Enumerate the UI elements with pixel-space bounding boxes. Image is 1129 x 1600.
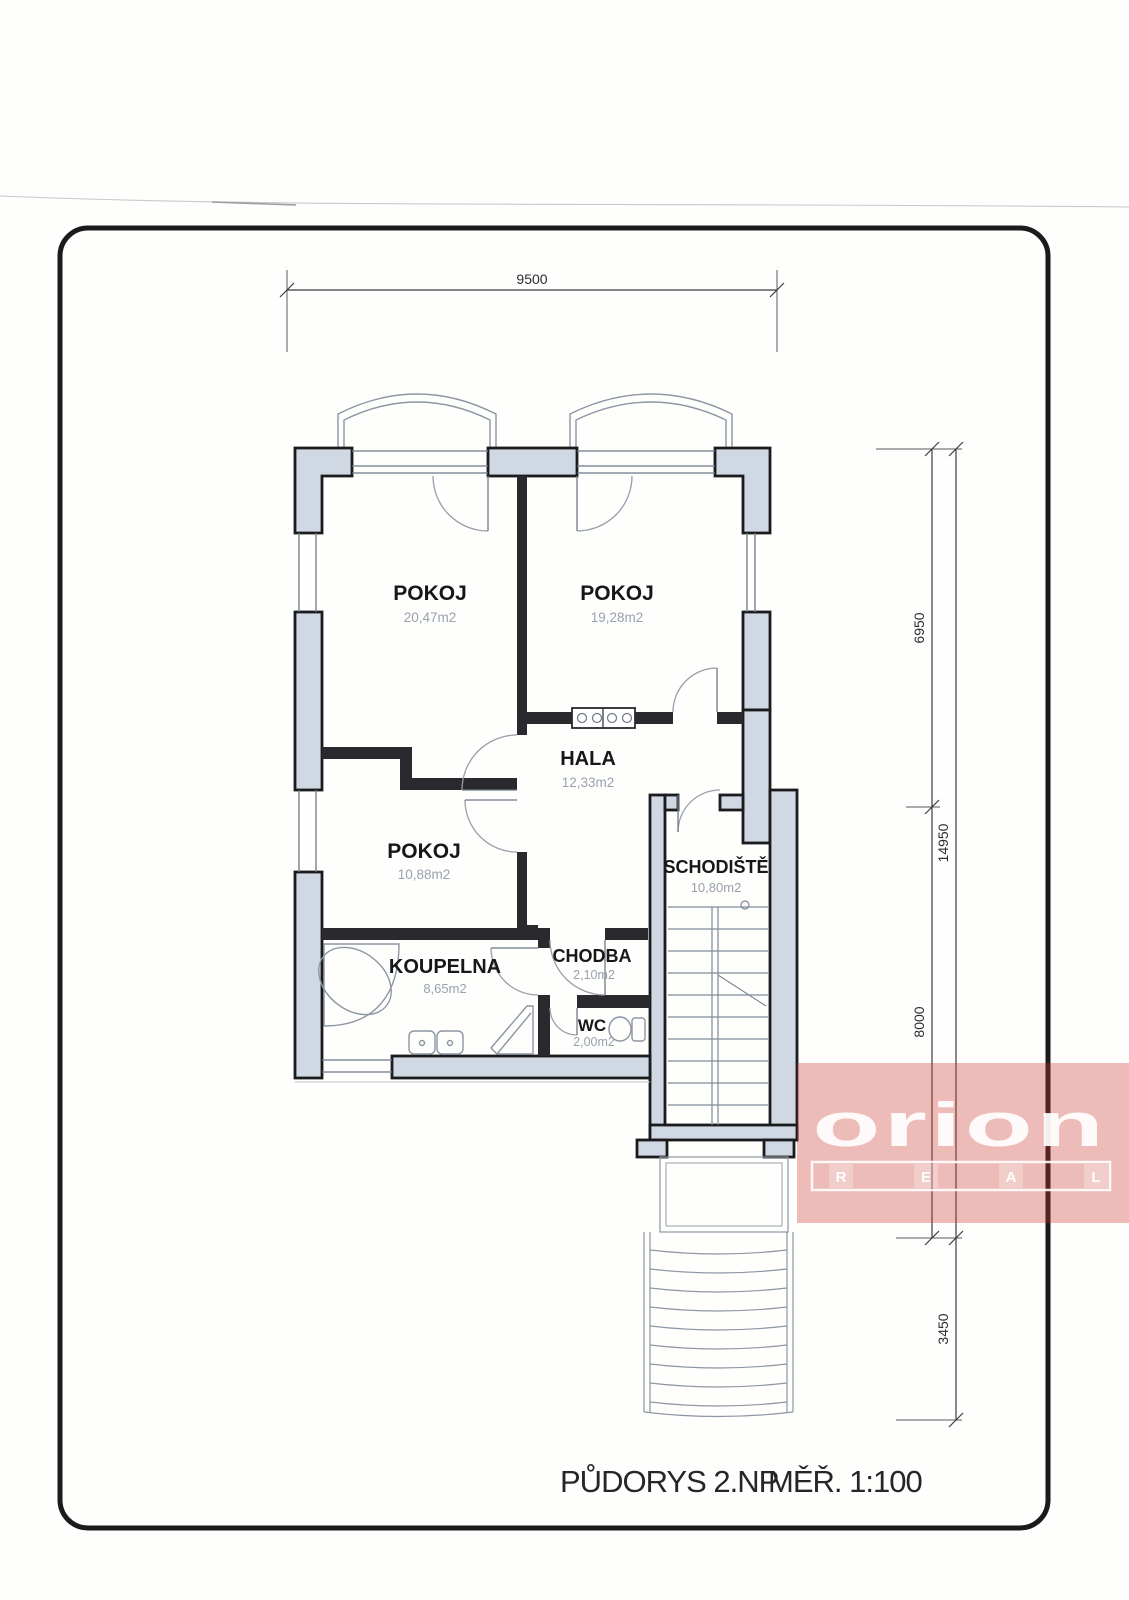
room-name: POKOJ [387,840,461,863]
room-area: 10,88m2 [398,867,451,882]
room-area: 19,28m2 [591,610,644,625]
wall-shelf-element [572,708,635,728]
room-name: POKOJ [580,582,654,605]
room-area: 12,33m2 [562,775,615,790]
room-area: 2,00m2 [573,1035,615,1049]
room-area: 2,10m2 [573,968,615,982]
drawing-scale-text: MĚŘ. 1:100 [768,1464,922,1499]
exterior-entry-stairs [644,1157,793,1417]
staircase-treads [668,901,768,1125]
room-area: 10,80m2 [691,880,742,895]
room-label-koupelna: KOUPELNA 8,65m2 [389,956,501,996]
room-name: SCHODIŠTĚ [663,856,768,877]
watermark-letter: L [1091,1169,1100,1186]
floorplan-drawing: 9500 6950 8000 14950 3450 [0,0,1129,1600]
corner-shower-icon [491,1006,533,1054]
scanned-floorplan-page: 9500 6950 8000 14950 3450 [0,0,1129,1600]
drawing-title-text: PŮDORYS 2.NP [560,1463,779,1499]
room-label-pokoj-top-right: POKOJ 19,28m2 [580,582,654,625]
drawing-frame [60,228,1048,1528]
dimension-right [876,442,963,1427]
room-name: KOUPELNA [389,956,501,978]
room-label-pokoj-top-left: POKOJ 20,47m2 [393,582,467,625]
watermark: orion R E A L [797,1063,1129,1223]
room-name: HALA [560,748,616,770]
room-area: 20,47m2 [404,610,457,625]
dimension-top-value: 9500 [516,271,547,287]
room-label-pokoj-small: POKOJ 10,88m2 [387,840,461,882]
dimension-right-stairs-value: 3450 [935,1313,951,1344]
room-name: WC [578,1016,606,1035]
room-area: 8,65m2 [423,981,466,996]
dimension-right-lower-value: 8000 [911,1006,927,1037]
scan-artifact-paper-edge [0,196,1129,207]
room-label-wc: WC 2,00m2 [573,1016,615,1049]
watermark-letter: E [921,1169,931,1186]
double-washbasin-icon [409,1031,463,1054]
room-name: CHODBA [553,946,632,966]
room-labels: POKOJ 20,47m2 POKOJ 19,28m2 HALA 12,33m2… [387,582,768,1049]
room-label-schodiste: SCHODIŠTĚ 10,80m2 [663,856,768,895]
room-name: POKOJ [393,582,467,605]
watermark-letter: R [836,1169,847,1186]
drawing-title: PŮDORYS 2.NP MĚŘ. 1:100 [560,1463,922,1499]
watermark-brand-logo: orion [813,1091,1108,1160]
interior-partitions [322,476,743,1056]
dimension-right-upper-value: 6950 [911,612,927,643]
watermark-letter: A [1006,1169,1017,1186]
room-label-hala: HALA 12,33m2 [560,748,616,790]
dimension-right-total-value: 14950 [935,823,951,862]
bay-window-arcs [338,394,732,448]
